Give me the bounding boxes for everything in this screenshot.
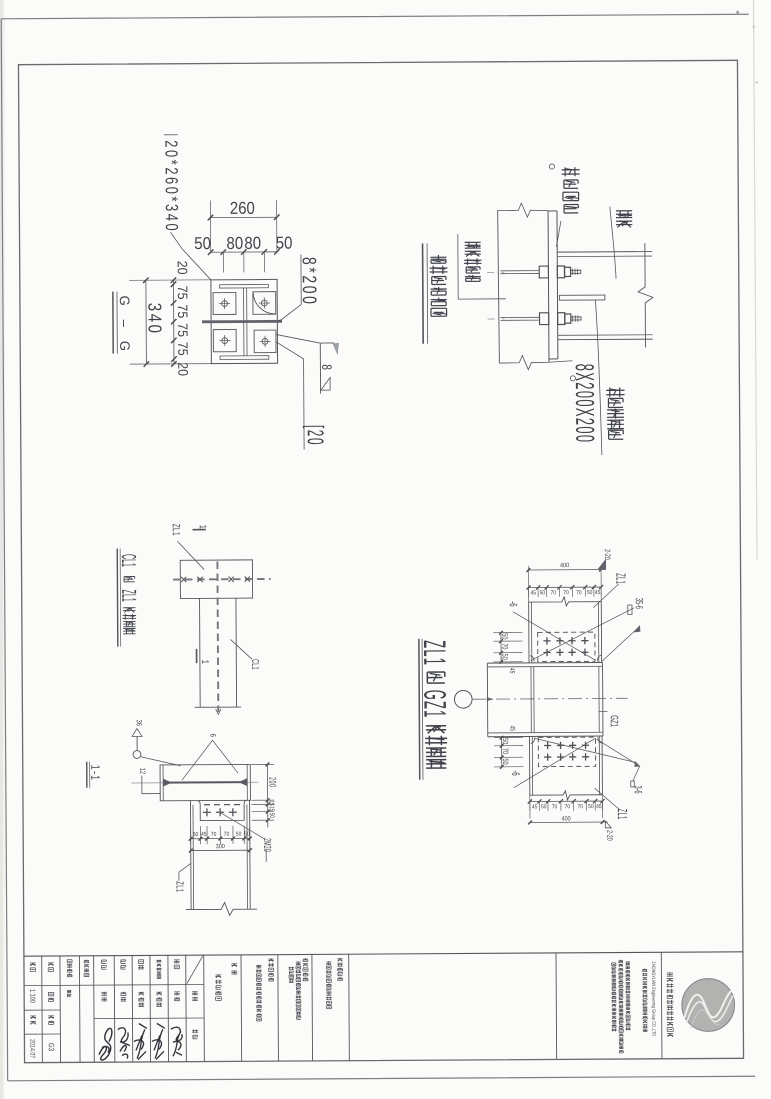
svg-text:50: 50 [500,633,508,639]
svg-text:ZHONGYUAN Engineering Group CO: ZHONGYUAN Engineering Group CO.,LTD [651,961,657,1036]
svg-text:50: 50 [501,738,509,744]
svg-text:50: 50 [194,234,211,253]
svg-text:50: 50 [587,590,593,596]
svg-text:80: 80 [226,234,243,253]
svg-text:15: 15 [267,801,274,806]
svg-text:75: 75 [175,323,191,337]
svg-text:75: 75 [175,286,191,300]
svg-text:ZL1: ZL1 [170,524,182,536]
svg-text:G3: G3 [46,1043,54,1051]
svg-text:75: 75 [175,342,191,356]
svg-text:70: 70 [211,832,217,838]
svg-text:50: 50 [236,831,242,837]
svg-text:45: 45 [201,832,207,838]
svg-text:50: 50 [541,804,547,810]
svg-text:20*260*340: 20*260*340 [161,140,181,233]
svg-text:400: 400 [561,816,571,822]
svg-text:70: 70 [500,643,508,649]
svg-text:2-20: 2-20 [605,830,613,841]
svg-text:75: 75 [175,304,191,318]
svg-text:ZL1: ZL1 [614,809,628,820]
svg-text:70: 70 [550,590,556,596]
svg-text:ZL1: ZL1 [612,573,626,584]
svg-text:340: 340 [144,303,165,336]
svg-text:1:100: 1:100 [28,989,36,1003]
svg-text:20: 20 [175,362,191,376]
svg-text:50: 50 [540,590,546,596]
svg-text:-6: -6 [510,770,522,776]
svg-text:20: 20 [175,261,191,275]
svg-text:35-6: 35-6 [633,598,646,609]
svg-text:50: 50 [501,758,509,764]
svg-text:3-6: 3-6 [632,786,645,794]
svg-text:2014.07: 2014.07 [28,1039,36,1059]
svg-text:45: 45 [531,590,537,596]
svg-text:CL1: CL1 [250,659,261,670]
svg-text:400: 400 [560,563,570,569]
svg-text:45: 45 [508,668,516,674]
svg-text:ZL1: ZL1 [416,640,451,666]
svg-text:45: 45 [595,590,601,596]
svg-text:50: 50 [500,654,508,660]
svg-text:260: 260 [230,199,255,218]
svg-text:50: 50 [268,813,275,818]
svg-text:70: 70 [565,804,571,810]
svg-text:70: 70 [577,804,583,810]
svg-text:6: 6 [208,734,216,737]
svg-text:2M20: 2M20 [261,838,272,852]
svg-text:70: 70 [224,831,230,837]
svg-text:2-20: 2-20 [603,549,611,560]
svg-text:50: 50 [244,831,250,837]
svg-text:45: 45 [596,804,602,810]
svg-text:36: 36 [134,720,142,726]
svg-text:1: 1 [198,525,209,530]
svg-text:15: 15 [267,806,274,811]
svg-text:ZL1: ZL1 [174,881,186,892]
svg-text:50: 50 [588,804,594,810]
svg-text:G–G: G–G [117,296,133,366]
svg-text:70: 70 [576,590,582,596]
svg-text:-6: -6 [507,601,519,607]
svg-text:12: 12 [138,768,146,774]
svg-text:45: 45 [508,725,516,731]
svg-text:50: 50 [193,832,199,838]
svg-text:70: 70 [501,748,509,754]
svg-text:45: 45 [532,804,538,810]
svg-text:70: 70 [563,590,569,596]
svg-text:80: 80 [244,234,261,253]
svg-text:300: 300 [216,844,226,850]
svg-text:200: 200 [267,777,278,788]
svg-text:GZ1: GZ1 [608,715,620,727]
svg-text:GZ1: GZ1 [416,690,451,719]
svg-text:1: 1 [200,660,211,665]
svg-text:70: 70 [552,804,558,810]
svg-text:50: 50 [276,234,293,253]
svg-text:[20: [20 [303,425,328,446]
svg-text:8: 8 [319,364,335,370]
